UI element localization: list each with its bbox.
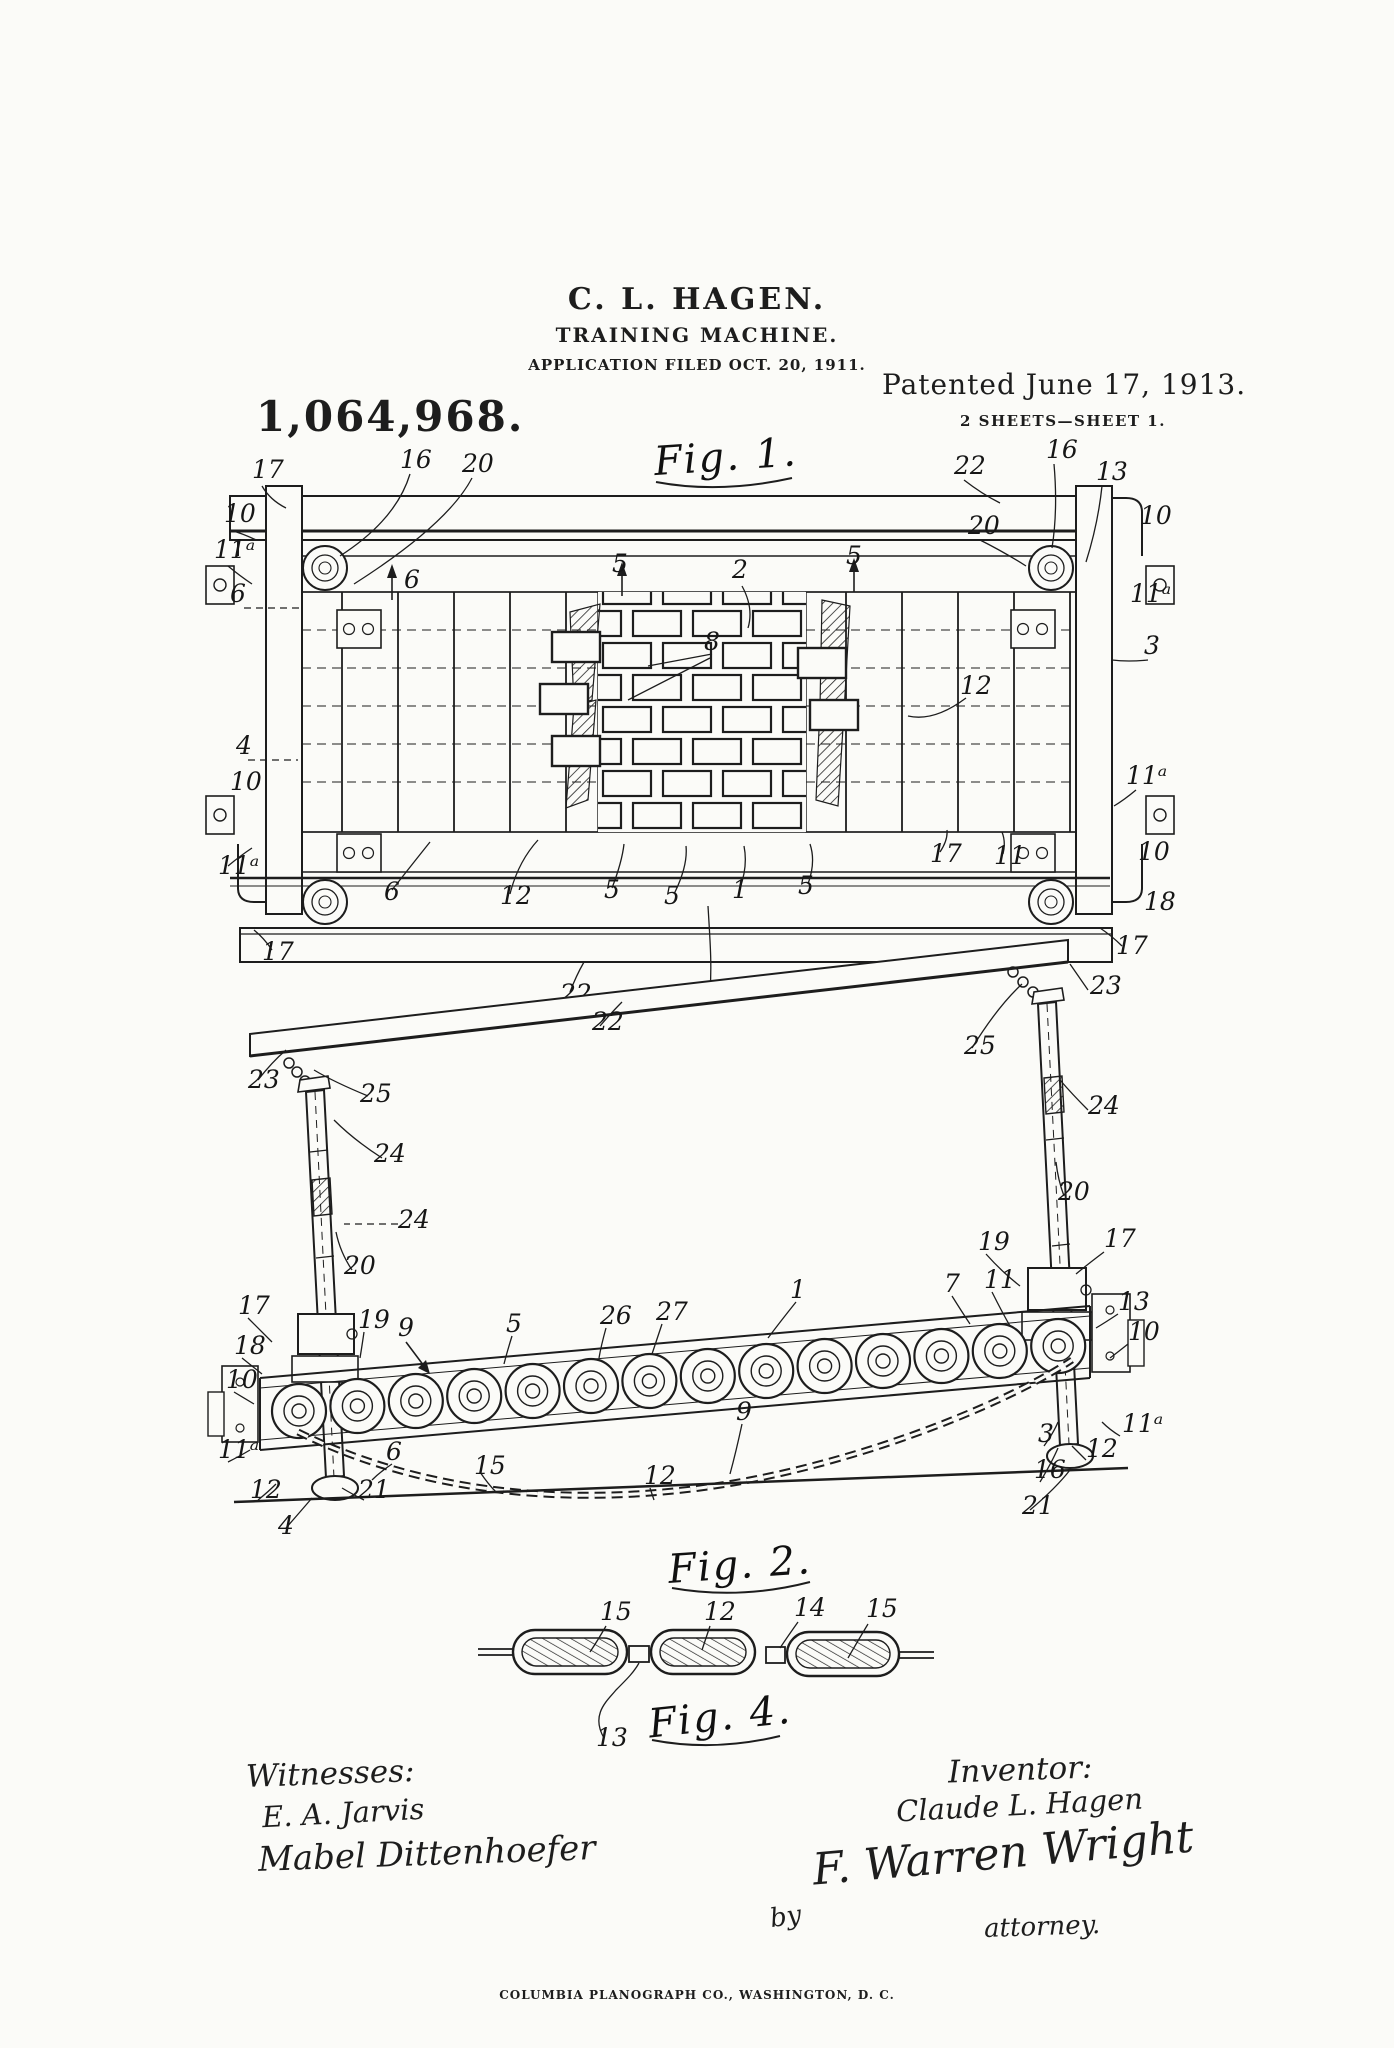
ref-label-21: 21 — [357, 1475, 390, 1504]
ref-label-13: 13 — [596, 1723, 628, 1752]
ref-label-11ᵃ: 11ᵃ — [1130, 579, 1171, 608]
ref-label-20: 20 — [1057, 1177, 1090, 1206]
ref-label-7: 7 — [944, 1269, 960, 1298]
patent-drawing: Fig. 1. — [0, 0, 1394, 2048]
ref-label-16: 16 — [1046, 435, 1078, 464]
ref-label-17: 17 — [930, 839, 962, 868]
ref-label-17: 17 — [1116, 931, 1148, 960]
ref-label-24: 24 — [397, 1205, 430, 1234]
ref-label-11: 11 — [994, 841, 1026, 870]
roller — [330, 1379, 384, 1433]
ref-label-11ᵃ: 11ᵃ — [1122, 1409, 1163, 1438]
ref-label-17: 17 — [262, 937, 294, 966]
ref-label-9: 9 — [736, 1397, 752, 1426]
roller — [856, 1334, 910, 1388]
ref-label-6: 6 — [384, 877, 400, 906]
ref-label-23: 23 — [1089, 971, 1122, 1000]
ref-label-10: 10 — [1140, 501, 1172, 530]
ref-label-2: 2 — [731, 555, 748, 584]
ref-label-15: 15 — [866, 1594, 898, 1623]
ref-label-10: 10 — [224, 499, 256, 528]
ref-label-12: 12 — [644, 1461, 676, 1490]
ref-label-10: 10 — [1138, 837, 1170, 866]
fig4-chain-detail: Fig. 4. 1512141513 — [478, 1593, 934, 1752]
roller — [739, 1344, 793, 1398]
ref-label-11ᵃ: 11ᵃ — [218, 851, 259, 880]
chain-connector — [766, 1647, 785, 1663]
ref-label-8: 8 — [704, 627, 720, 656]
roller — [564, 1359, 618, 1413]
ref-label-5: 5 — [846, 541, 862, 570]
ref-label-11ᵃ: 11ᵃ — [1126, 761, 1167, 790]
ref-label-18: 18 — [1144, 887, 1176, 916]
ref-label-24: 24 — [1087, 1091, 1120, 1120]
witnesses-heading: Witnesses: — [245, 1753, 415, 1795]
ref-label-9: 9 — [398, 1313, 414, 1342]
ref-label-12: 12 — [704, 1597, 736, 1626]
ref-label-16: 16 — [400, 445, 432, 474]
roller — [914, 1329, 968, 1383]
ref-label-12: 12 — [960, 671, 992, 700]
roller — [506, 1364, 560, 1418]
ref-label-21: 21 — [1021, 1491, 1054, 1520]
ref-label-25: 25 — [359, 1079, 392, 1108]
right-end-rail — [1076, 486, 1112, 914]
ref-label-22: 22 — [591, 1007, 624, 1036]
by-label: by — [768, 1900, 803, 1934]
ref-label-18: 18 — [234, 1331, 266, 1360]
ref-label-17: 17 — [1104, 1224, 1136, 1253]
ref-label-20: 20 — [967, 511, 1000, 540]
ref-label-17: 17 — [252, 455, 284, 484]
ref-label-3: 3 — [1038, 1419, 1054, 1448]
ref-label-11ᵃ: 11ᵃ — [218, 1435, 259, 1464]
chain-connector — [629, 1646, 649, 1662]
ref-label-27: 27 — [655, 1297, 688, 1326]
ref-label-10: 10 — [230, 767, 262, 796]
ref-label-15: 15 — [600, 1597, 632, 1626]
fig2-side-elevation: Fig. 2. — [208, 940, 1163, 1593]
ref-label-5: 5 — [612, 549, 628, 578]
ref-label-23: 23 — [247, 1065, 280, 1094]
ref-label-10: 10 — [1128, 1317, 1160, 1346]
roller — [681, 1349, 735, 1403]
roller — [1031, 1319, 1085, 1373]
ref-label-12: 12 — [250, 1475, 282, 1504]
roller — [798, 1339, 852, 1393]
ref-label-5: 5 — [604, 875, 620, 904]
printer-line: COLUMBIA PLANOGRAPH CO., WASHINGTON, D. … — [0, 1988, 1394, 2002]
ref-label-6: 6 — [230, 579, 246, 608]
ref-label-3: 3 — [1144, 631, 1160, 660]
ref-label-4: 4 — [277, 1511, 294, 1540]
ref-label-1: 1 — [732, 875, 748, 904]
ref-label-5: 5 — [506, 1309, 522, 1338]
ref-label-5: 5 — [798, 871, 814, 900]
roller — [272, 1384, 326, 1438]
chain-link — [651, 1630, 755, 1674]
ref-label-22: 22 — [953, 451, 986, 480]
ref-label-16: 16 — [1034, 1455, 1066, 1484]
roller — [447, 1369, 501, 1423]
ref-label-24: 24 — [373, 1139, 406, 1168]
left-end-rail — [266, 486, 302, 914]
ref-label-20: 20 — [461, 449, 494, 478]
ref-label-26: 26 — [599, 1301, 632, 1330]
ref-label-5: 5 — [664, 881, 680, 910]
roller — [389, 1374, 443, 1428]
ref-label-12: 12 — [1086, 1434, 1118, 1463]
ref-label-6: 6 — [404, 565, 420, 594]
ref-label-17: 17 — [238, 1291, 270, 1320]
belt-brick-weave — [598, 592, 806, 832]
ref-label-10: 10 — [226, 1365, 258, 1394]
chain-link — [513, 1630, 627, 1674]
ref-label-15: 15 — [474, 1451, 506, 1480]
patent-sheet: C. L. HAGEN. TRAINING MACHINE. APPLICATI… — [0, 0, 1394, 2048]
fig1-plan-view: Fig. 1. — [206, 429, 1176, 1008]
ref-label-13: 13 — [1118, 1287, 1150, 1316]
ref-label-11ᵃ: 11ᵃ — [214, 535, 255, 564]
ref-label-1: 1 — [790, 1275, 806, 1304]
roller — [622, 1354, 676, 1408]
ref-label-20: 20 — [343, 1251, 376, 1280]
ref-label-12: 12 — [500, 881, 532, 910]
ref-label-25: 25 — [963, 1031, 996, 1060]
fig1-caption: Fig. 1. — [651, 429, 799, 485]
fig2-caption: Fig. 2. — [666, 1537, 814, 1593]
ref-label-14: 14 — [794, 1593, 826, 1622]
ref-label-19: 19 — [978, 1227, 1010, 1256]
attorney-label: attorney. — [984, 1910, 1101, 1944]
ref-label-4: 4 — [235, 731, 252, 760]
ref-label-19: 19 — [358, 1305, 390, 1334]
roller — [973, 1324, 1027, 1378]
chain-link — [787, 1632, 899, 1676]
ref-label-6: 6 — [386, 1437, 402, 1466]
ref-label-13: 13 — [1096, 457, 1128, 486]
ref-label-11: 11 — [984, 1265, 1016, 1294]
